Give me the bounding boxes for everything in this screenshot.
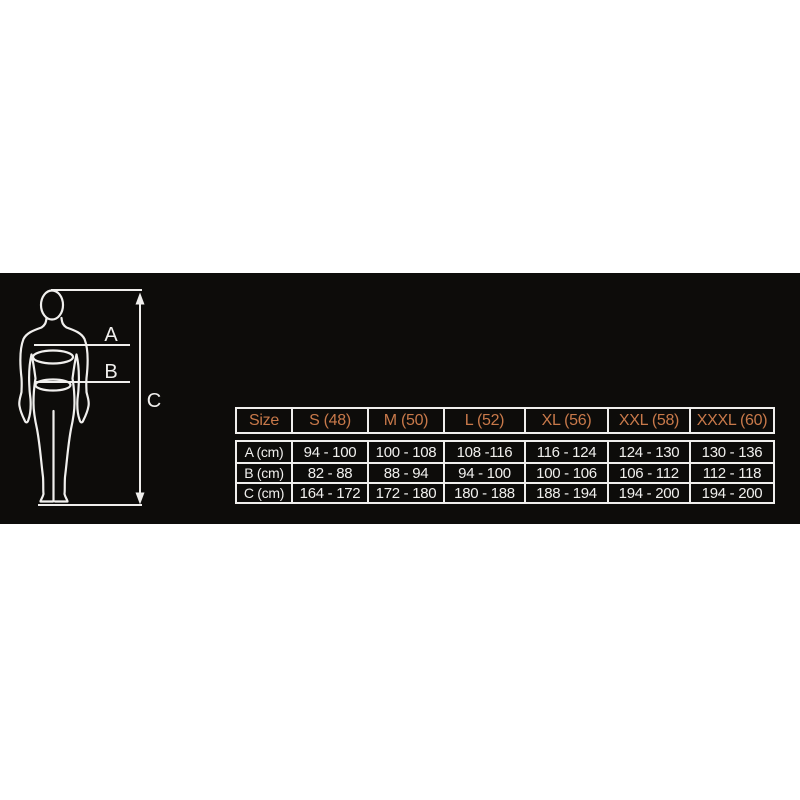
chest-measure-ellipse (33, 351, 73, 364)
table-row-b: B (cm) 82 - 88 88 - 94 94 - 100 100 - 10… (237, 462, 773, 482)
cell-a-m: 100 - 108 (367, 442, 443, 462)
cell-a-xxxl: 130 - 136 (689, 442, 773, 462)
measurement-label-a: A (104, 324, 118, 346)
measurement-label-c: C (147, 390, 161, 412)
page-background: { "panel": { "background": "#0d0c0a", "l… (0, 0, 800, 800)
cell-c-l: 180 - 188 (443, 484, 524, 502)
header-cell-m: M (50) (367, 409, 443, 432)
cell-b-xl: 100 - 106 (524, 464, 607, 482)
cell-b-xxl: 106 - 112 (607, 464, 689, 482)
header-cell-xxl: XXL (58) (607, 409, 689, 432)
table-row-a: A (cm) 94 - 100 100 - 108 108 -116 116 -… (237, 442, 773, 462)
header-cell-size: Size (237, 409, 291, 432)
head-outline (41, 291, 63, 320)
size-table-body: A (cm) 94 - 100 100 - 108 108 -116 116 -… (235, 440, 775, 504)
cell-a-xxl: 124 - 130 (607, 442, 689, 462)
header-cell-xxxl: XXXL (60) (689, 409, 773, 432)
cell-b-m: 88 - 94 (367, 464, 443, 482)
cell-c-m: 172 - 180 (367, 484, 443, 502)
row-label-a: A (cm) (237, 442, 291, 462)
height-arrow-head-bottom (136, 493, 145, 505)
header-cell-s: S (48) (291, 409, 367, 432)
header-cell-l: L (52) (443, 409, 524, 432)
cell-b-xxxl: 112 - 118 (689, 464, 773, 482)
row-label-c: C (cm) (237, 484, 291, 502)
size-chart-panel: A B C Size S (48) M (50) L (52) XL (56) … (0, 273, 800, 524)
table-row-c: C (cm) 164 - 172 172 - 180 180 - 188 188… (237, 482, 773, 502)
cell-b-s: 82 - 88 (291, 464, 367, 482)
cell-c-xxl: 194 - 200 (607, 484, 689, 502)
cell-c-xl: 188 - 194 (524, 484, 607, 502)
row-label-b: B (cm) (237, 464, 291, 482)
cell-a-xl: 116 - 124 (524, 442, 607, 462)
header-cell-xl: XL (56) (524, 409, 607, 432)
measurement-label-b: B (104, 361, 117, 383)
cell-b-l: 94 - 100 (443, 464, 524, 482)
size-table: Size S (48) M (50) L (52) XL (56) XXL (5… (235, 407, 775, 504)
cell-c-xxxl: 194 - 200 (689, 484, 773, 502)
size-table-header-row: Size S (48) M (50) L (52) XL (56) XXL (5… (235, 407, 775, 434)
cell-a-s: 94 - 100 (291, 442, 367, 462)
cell-a-l: 108 -116 (443, 442, 524, 462)
height-arrow-head-top (136, 293, 145, 305)
cell-c-s: 164 - 172 (291, 484, 367, 502)
